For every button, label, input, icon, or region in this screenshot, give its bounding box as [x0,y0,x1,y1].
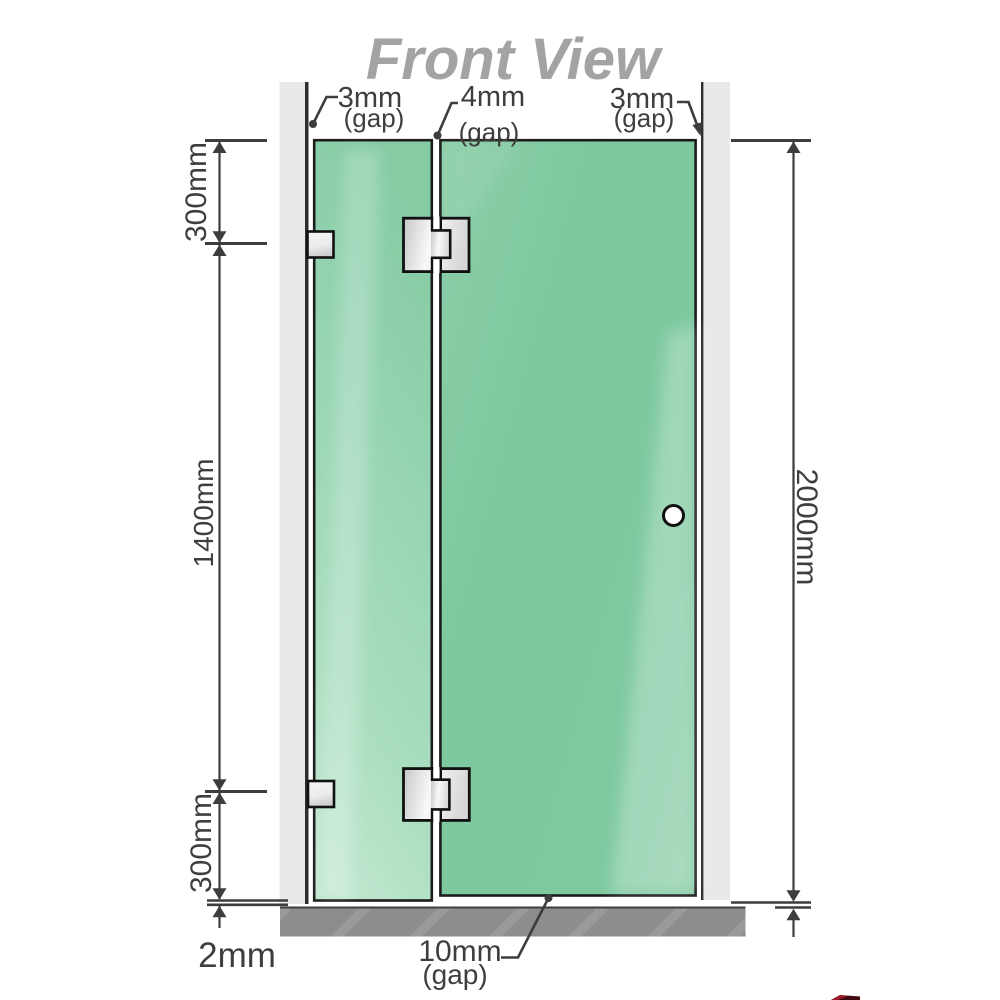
svg-text:(gap): (gap) [459,117,520,147]
svg-text:1400mm: 1400mm [188,459,219,568]
svg-text:300mm: 300mm [180,142,213,242]
svg-text:300mm: 300mm [185,793,218,893]
svg-text:4mm: 4mm [461,81,525,113]
svg-text:(gap): (gap) [344,103,405,133]
svg-text:(gap): (gap) [614,103,675,133]
svg-text:2000mm: 2000mm [790,469,823,586]
svg-text:(gap): (gap) [422,959,487,990]
svg-text:2mm: 2mm [198,936,276,975]
